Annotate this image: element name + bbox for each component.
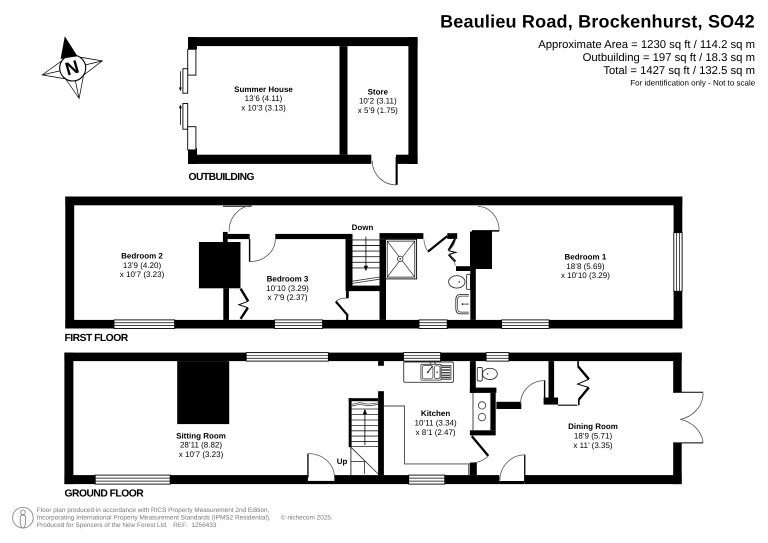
svg-text:x 7’9 (2.37): x 7’9 (2.37) — [267, 293, 307, 302]
svg-text:10’10 (3.29): 10’10 (3.29) — [266, 284, 309, 293]
svg-text:Dining Room: Dining Room — [568, 422, 618, 431]
svg-text:Bedroom 2: Bedroom 2 — [121, 251, 163, 260]
svg-text:10’2 (3.11): 10’2 (3.11) — [359, 97, 397, 106]
svg-text:x 10’7 (3.23): x 10’7 (3.23) — [179, 450, 224, 459]
svg-text:OUTBUILDING: OUTBUILDING — [189, 172, 255, 183]
svg-text:13’6 (4.11): 13’6 (4.11) — [245, 94, 283, 103]
svg-text:Down: Down — [352, 223, 374, 232]
svg-text:13’9 (4.20): 13’9 (4.20) — [123, 261, 162, 270]
svg-text:18’9 (5.71): 18’9 (5.71) — [574, 432, 613, 441]
svg-text:18’8 (5.69): 18’8 (5.69) — [566, 262, 605, 271]
svg-text:Beaulieu Road, Brockenhurst, S: Beaulieu Road, Brockenhurst, SO42 — [440, 12, 755, 32]
svg-text:© nichecom 2025.: © nichecom 2025. — [281, 515, 333, 522]
svg-text:Approximate Area = 1230 sq ft: Approximate Area = 1230 sq ft / 114.2 sq… — [538, 39, 755, 51]
svg-text:x 8’1 (2.47): x 8’1 (2.47) — [416, 428, 456, 437]
svg-text:Floor plan produced in accorda: Floor plan produced in accordance with R… — [37, 507, 270, 514]
svg-text:Total = 1427 sq ft / 132.5 sq: Total = 1427 sq ft / 132.5 sq m — [603, 65, 755, 77]
svg-text:10’11 (3.34): 10’11 (3.34) — [415, 418, 457, 427]
svg-text:x 10’3 (3.13): x 10’3 (3.13) — [241, 104, 286, 113]
svg-text:x 10’10 (3.29): x 10’10 (3.29) — [561, 271, 610, 280]
svg-text:FIRST FLOOR: FIRST FLOOR — [65, 333, 129, 344]
svg-text:GROUND FLOOR: GROUND FLOOR — [65, 489, 145, 500]
svg-text:Store: Store — [368, 87, 389, 96]
svg-text:Produced for Spencers of the N: Produced for Spencers of the New Forest … — [37, 522, 217, 529]
svg-text:28’11 (8.82): 28’11 (8.82) — [180, 441, 222, 450]
svg-text:Kitchen: Kitchen — [421, 409, 450, 418]
svg-text:Bedroom 1: Bedroom 1 — [565, 252, 607, 261]
svg-text:x 10’7 (3.23): x 10’7 (3.23) — [120, 270, 165, 279]
svg-text:Summer House: Summer House — [234, 85, 293, 94]
svg-text:Incorporating International Pr: Incorporating International Property Mea… — [37, 515, 271, 522]
svg-text:Sitting Room: Sitting Room — [176, 431, 226, 440]
svg-text:Up: Up — [337, 457, 348, 466]
svg-text:Outbuilding = 197 sq ft / 18.3: Outbuilding = 197 sq ft / 18.3 sq m — [583, 52, 755, 64]
svg-text:For identification only - Not: For identification only - Not to scale — [630, 79, 755, 88]
svg-text:x 5’9 (1.75): x 5’9 (1.75) — [358, 106, 398, 115]
svg-text:x 11’ (3.35): x 11’ (3.35) — [573, 441, 612, 450]
svg-text:Bedroom 3: Bedroom 3 — [267, 274, 309, 283]
